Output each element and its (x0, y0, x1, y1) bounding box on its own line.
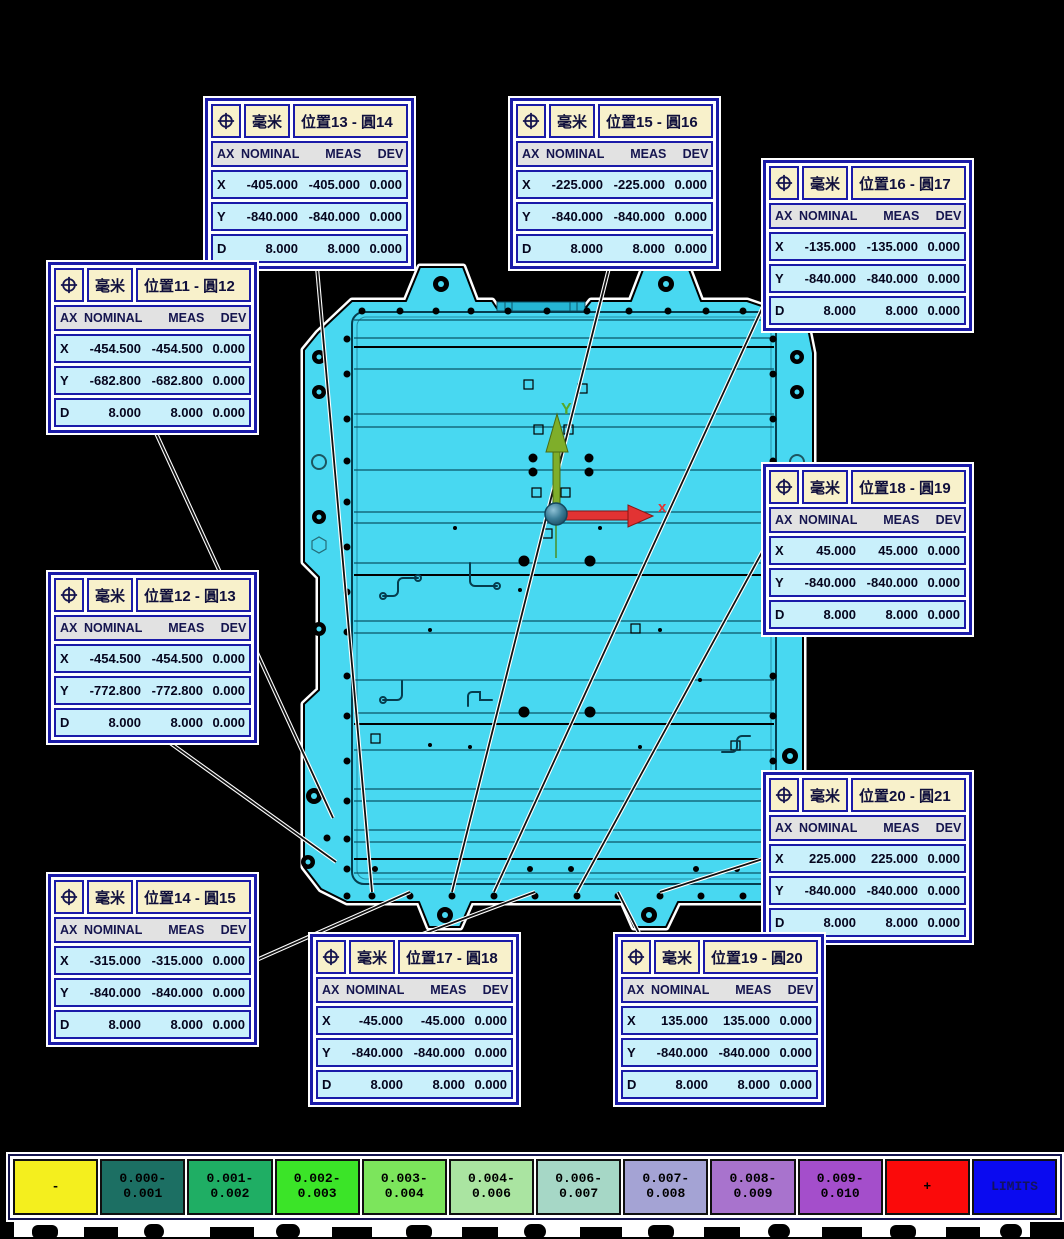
unit-label: 毫米 (654, 940, 700, 974)
position-feature-icon (316, 940, 346, 974)
meas-value: 8.000 (856, 607, 918, 622)
nominal-value: 8.000 (546, 241, 603, 256)
meas-value: 8.000 (298, 241, 360, 256)
col-nominal: NOMINAL (651, 983, 709, 997)
crosshair-circle-icon (60, 586, 78, 604)
feature-label-header: 毫米 位置14 - 圓15 (54, 880, 251, 914)
col-nominal: NOMINAL (546, 147, 604, 161)
nominal-value: 8.000 (84, 715, 141, 730)
dev-value: 0.000 (465, 1013, 507, 1028)
col-dev: DEV (466, 983, 508, 997)
feature-label-header: 毫米 位置15 - 圓16 (516, 104, 713, 138)
legend-cell-0004-0006[interactable]: 0.004-0.006 (449, 1159, 534, 1215)
dev-value: 0.000 (665, 241, 707, 256)
feature-label-header: 毫米 位置17 - 圓18 (316, 940, 513, 974)
nominal-value: 8.000 (346, 1077, 403, 1092)
meas-value: -454.500 (141, 651, 203, 666)
col-nominal: NOMINAL (799, 209, 857, 223)
measurement-row-y: Y -840.000 -840.000 0.000 (769, 264, 966, 293)
legend-cell-0002-0003[interactable]: 0.002-0.003 (275, 1159, 360, 1215)
nominal-value: -840.000 (651, 1045, 708, 1060)
position-feature-icon (211, 104, 241, 138)
measurement-row-x: X 45.000 45.000 0.000 (769, 536, 966, 565)
legend-cell-0006-0007[interactable]: 0.006-0.007 (536, 1159, 621, 1215)
dev-value: 0.000 (203, 683, 245, 698)
col-nominal: NOMINAL (84, 311, 142, 325)
axis-name: Y (775, 883, 799, 898)
axis-name: D (775, 915, 799, 930)
measurement-row-d: D 8.000 8.000 0.000 (769, 908, 966, 937)
column-header-row: AX NOMINAL MEAS DEV (769, 815, 966, 841)
axis-name: D (775, 303, 799, 318)
meas-value: -45.000 (403, 1013, 465, 1028)
axis-name: X (627, 1013, 651, 1028)
measurement-row-x: X -454.500 -454.500 0.000 (54, 334, 251, 363)
legend-cell-under[interactable]: - (13, 1159, 98, 1215)
axis-name: X (217, 177, 241, 192)
column-header-row: AX NOMINAL MEAS DEV (621, 977, 818, 1003)
feature-box-pos18-cir19[interactable]: 毫米 位置18 - 圓19 AX NOMINAL MEAS DEV X 45.0… (763, 464, 972, 635)
meas-value: 8.000 (141, 405, 203, 420)
meas-value: -225.000 (603, 177, 665, 192)
position-feature-icon (516, 104, 546, 138)
nominal-value: 8.000 (799, 303, 856, 318)
feature-title: 位置13 - 圓14 (293, 104, 408, 138)
col-meas: MEAS (299, 147, 361, 161)
col-dev: DEV (919, 821, 961, 835)
axis-name: Y (60, 985, 84, 1000)
axis-name: X (60, 651, 84, 666)
dev-value: 0.000 (918, 303, 960, 318)
col-meas: MEAS (857, 209, 919, 223)
dev-value: 0.000 (203, 405, 245, 420)
meas-value: -454.500 (141, 341, 203, 356)
feature-title: 位置20 - 圓21 (851, 778, 966, 812)
measurement-row-y: Y -840.000 -840.000 0.000 (769, 876, 966, 905)
feature-label-header: 毫米 位置12 - 圓13 (54, 578, 251, 612)
col-ax: AX (522, 147, 546, 161)
unit-label: 毫米 (87, 578, 133, 612)
measurement-row-y: Y -840.000 -840.000 0.000 (621, 1038, 818, 1067)
feature-box-pos20-cir21[interactable]: 毫米 位置20 - 圓21 AX NOMINAL MEAS DEV X 225.… (763, 772, 972, 943)
nominal-value: -405.000 (241, 177, 298, 192)
feature-box-pos15-cir16[interactable]: 毫米 位置15 - 圓16 AX NOMINAL MEAS DEV X -225… (510, 98, 719, 269)
measurement-row-x: X 225.000 225.000 0.000 (769, 844, 966, 873)
crosshair-circle-icon (775, 174, 793, 192)
col-meas: MEAS (857, 513, 919, 527)
measurement-row-y: Y -772.800 -772.800 0.000 (54, 676, 251, 705)
meas-value: -840.000 (141, 985, 203, 1000)
nominal-value: 8.000 (241, 241, 298, 256)
column-header-row: AX NOMINAL MEAS DEV (316, 977, 513, 1003)
feature-label-header: 毫米 位置11 - 圓12 (54, 268, 251, 302)
col-dev: DEV (361, 147, 403, 161)
dev-value: 0.000 (665, 209, 707, 224)
measurement-row-y: Y -840.000 -840.000 0.000 (516, 202, 713, 231)
feature-box-pos12-cir13[interactable]: 毫米 位置12 - 圓13 AX NOMINAL MEAS DEV X -454… (48, 572, 257, 743)
axis-name: Y (60, 683, 84, 698)
dev-value: 0.000 (203, 985, 245, 1000)
nominal-value: -315.000 (84, 953, 141, 968)
measurement-row-d: D 8.000 8.000 0.000 (769, 600, 966, 629)
dev-value: 0.000 (918, 883, 960, 898)
meas-value: -840.000 (603, 209, 665, 224)
col-meas: MEAS (142, 311, 204, 325)
y-axis-label: Y (561, 401, 572, 418)
nominal-value: -454.500 (84, 651, 141, 666)
col-ax: AX (775, 513, 799, 527)
col-ax: AX (60, 311, 84, 325)
col-meas: MEAS (709, 983, 771, 997)
axis-name: D (60, 1017, 84, 1032)
col-nominal: NOMINAL (241, 147, 299, 161)
col-nominal: NOMINAL (346, 983, 404, 997)
legend-cell-0000-0001[interactable]: 0.000-0.001 (100, 1159, 185, 1215)
axis-name: D (522, 241, 546, 256)
col-ax: AX (775, 209, 799, 223)
feature-box-pos13-cir14[interactable]: 毫米 位置13 - 圓14 AX NOMINAL MEAS DEV X -405… (205, 98, 414, 269)
measurement-row-y: Y -682.800 -682.800 0.000 (54, 366, 251, 395)
dev-value: 0.000 (360, 209, 402, 224)
measurement-row-d: D 8.000 8.000 0.000 (54, 398, 251, 427)
measurement-row-y: Y -840.000 -840.000 0.000 (769, 568, 966, 597)
dev-value: 0.000 (360, 177, 402, 192)
unit-label: 毫米 (549, 104, 595, 138)
axis-name: X (775, 851, 799, 866)
nominal-value: 8.000 (84, 1017, 141, 1032)
unit-label: 毫米 (349, 940, 395, 974)
axis-name: X (60, 341, 84, 356)
dev-value: 0.000 (918, 851, 960, 866)
nominal-value: 8.000 (799, 915, 856, 930)
feature-title: 位置18 - 圓19 (851, 470, 966, 504)
axis-name: D (775, 607, 799, 622)
col-dev: DEV (919, 209, 961, 223)
position-feature-icon (54, 578, 84, 612)
crosshair-circle-icon (627, 948, 645, 966)
axis-name: Y (217, 209, 241, 224)
dev-value: 0.000 (465, 1077, 507, 1092)
axis-name: Y (60, 373, 84, 388)
origin-sphere (545, 503, 567, 525)
nominal-value: -840.000 (546, 209, 603, 224)
dev-value: 0.000 (918, 543, 960, 558)
measurement-row-x: X -454.500 -454.500 0.000 (54, 644, 251, 673)
feature-label-header: 毫米 位置16 - 圓17 (769, 166, 966, 200)
meas-value: -315.000 (141, 953, 203, 968)
col-dev: DEV (771, 983, 813, 997)
meas-value: -840.000 (856, 271, 918, 286)
position-feature-icon (54, 880, 84, 914)
axis-name: Y (627, 1045, 651, 1060)
meas-value: 8.000 (141, 715, 203, 730)
crosshair-circle-icon (522, 112, 540, 130)
meas-value: -682.800 (141, 373, 203, 388)
axis-name: Y (522, 209, 546, 224)
legend-cell-0003-0004[interactable]: 0.003-0.004 (362, 1159, 447, 1215)
measurement-row-x: X -45.000 -45.000 0.000 (316, 1006, 513, 1035)
axis-name: Y (322, 1045, 346, 1060)
nominal-value: 8.000 (84, 405, 141, 420)
crosshair-circle-icon (60, 276, 78, 294)
meas-value: 8.000 (708, 1077, 770, 1092)
axis-name: Y (775, 271, 799, 286)
dev-value: 0.000 (770, 1045, 812, 1060)
legend-cell-0001-0002[interactable]: 0.001-0.002 (187, 1159, 272, 1215)
nominal-value: -135.000 (799, 239, 856, 254)
legend-cell-limits[interactable]: LIMITS (972, 1159, 1057, 1215)
unit-label: 毫米 (87, 880, 133, 914)
col-meas: MEAS (142, 923, 204, 937)
col-ax: AX (322, 983, 346, 997)
nominal-value: -840.000 (241, 209, 298, 224)
cutoff-content-strip (14, 1219, 1030, 1237)
dev-value: 0.000 (770, 1077, 812, 1092)
col-ax: AX (60, 621, 84, 635)
crosshair-circle-icon (775, 786, 793, 804)
nominal-value: -772.800 (84, 683, 141, 698)
col-meas: MEAS (857, 821, 919, 835)
col-ax: AX (60, 923, 84, 937)
axis-name: D (60, 405, 84, 420)
measurement-row-d: D 8.000 8.000 0.000 (516, 234, 713, 263)
nominal-value: -45.000 (346, 1013, 403, 1028)
position-feature-icon (769, 166, 799, 200)
unit-label: 毫米 (802, 778, 848, 812)
feature-title: 位置14 - 圓15 (136, 880, 251, 914)
col-meas: MEAS (604, 147, 666, 161)
axis-name: X (60, 953, 84, 968)
meas-value: -135.000 (856, 239, 918, 254)
feature-title: 位置11 - 圓12 (136, 268, 251, 302)
meas-value: 8.000 (856, 303, 918, 318)
position-feature-icon (621, 940, 651, 974)
nominal-value: -840.000 (799, 575, 856, 590)
meas-value: -840.000 (298, 209, 360, 224)
feature-box-pos14-cir15[interactable]: 毫米 位置14 - 圓15 AX NOMINAL MEAS DEV X -315… (48, 874, 257, 1045)
legend-cell-0008-0009[interactable]: 0.008-0.009 (710, 1159, 795, 1215)
dev-value: 0.000 (203, 953, 245, 968)
measurement-row-d: D 8.000 8.000 0.000 (54, 1010, 251, 1039)
axis-name: D (627, 1077, 651, 1092)
measurement-row-x: X -225.000 -225.000 0.000 (516, 170, 713, 199)
feature-label-header: 毫米 位置18 - 圓19 (769, 470, 966, 504)
position-feature-icon (769, 470, 799, 504)
column-header-row: AX NOMINAL MEAS DEV (769, 507, 966, 533)
unit-label: 毫米 (87, 268, 133, 302)
measurement-row-x: X -315.000 -315.000 0.000 (54, 946, 251, 975)
legend-cell-0009-0010[interactable]: 0.009-0.010 (798, 1159, 883, 1215)
measurement-row-x: X -135.000 -135.000 0.000 (769, 232, 966, 261)
nominal-value: -840.000 (799, 271, 856, 286)
unit-label: 毫米 (802, 166, 848, 200)
column-header-row: AX NOMINAL MEAS DEV (769, 203, 966, 229)
axis-name: D (217, 241, 241, 256)
nominal-value: 225.000 (799, 851, 856, 866)
dev-value: 0.000 (665, 177, 707, 192)
axis-name: D (60, 715, 84, 730)
dev-value: 0.000 (918, 271, 960, 286)
dev-value: 0.000 (918, 575, 960, 590)
axis-name: X (775, 239, 799, 254)
crosshair-circle-icon (775, 478, 793, 496)
axis-name: Y (775, 575, 799, 590)
meas-value: 225.000 (856, 851, 918, 866)
col-ax: AX (217, 147, 241, 161)
feature-box-pos16-cir17[interactable]: 毫米 位置16 - 圓17 AX NOMINAL MEAS DEV X -135… (763, 160, 972, 331)
nominal-value: -840.000 (799, 883, 856, 898)
meas-value: -840.000 (708, 1045, 770, 1060)
measurement-row-d: D 8.000 8.000 0.000 (211, 234, 408, 263)
feature-title: 位置17 - 圓18 (398, 940, 513, 974)
nominal-value: 45.000 (799, 543, 856, 558)
crosshair-circle-icon (322, 948, 340, 966)
meas-value: 8.000 (141, 1017, 203, 1032)
column-header-row: AX NOMINAL MEAS DEV (54, 615, 251, 641)
dev-value: 0.000 (360, 241, 402, 256)
dev-value: 0.000 (203, 651, 245, 666)
measurement-row-y: Y -840.000 -840.000 0.000 (316, 1038, 513, 1067)
feature-label-header: 毫米 位置13 - 圓14 (211, 104, 408, 138)
legend-cell-over[interactable]: + (885, 1159, 970, 1215)
axis-name: D (322, 1077, 346, 1092)
meas-value: -840.000 (403, 1045, 465, 1060)
col-dev: DEV (204, 621, 246, 635)
cmm-report-canvas: { "app": {"background": "#000000"}, "col… (0, 0, 1064, 1237)
col-ax: AX (627, 983, 651, 997)
meas-value: 8.000 (603, 241, 665, 256)
feature-label-header: 毫米 位置19 - 圓20 (621, 940, 818, 974)
measurement-row-x: X -405.000 -405.000 0.000 (211, 170, 408, 199)
feature-title: 位置12 - 圓13 (136, 578, 251, 612)
crosshair-circle-icon (60, 888, 78, 906)
measurement-row-d: D 8.000 8.000 0.000 (316, 1070, 513, 1099)
measurement-row-x: X 135.000 135.000 0.000 (621, 1006, 818, 1035)
feature-box-pos17-cir18[interactable]: 毫米 位置17 - 圓18 AX NOMINAL MEAS DEV X -45.… (310, 934, 519, 1105)
deviation-color-scale: - 0.000-0.001 0.001-0.002 0.002-0.003 0.… (8, 1154, 1062, 1220)
measurement-row-d: D 8.000 8.000 0.000 (54, 708, 251, 737)
measurement-row-y: Y -840.000 -840.000 0.000 (54, 978, 251, 1007)
dev-value: 0.000 (203, 341, 245, 356)
dev-value: 0.000 (465, 1045, 507, 1060)
meas-value: -840.000 (856, 883, 918, 898)
dev-value: 0.000 (770, 1013, 812, 1028)
y-axis-shaft (553, 448, 560, 508)
dev-value: 0.000 (918, 915, 960, 930)
meas-value: -772.800 (141, 683, 203, 698)
col-meas: MEAS (404, 983, 466, 997)
meas-value: -405.000 (298, 177, 360, 192)
x-axis-shaft (566, 511, 628, 520)
col-dev: DEV (204, 311, 246, 325)
col-dev: DEV (204, 923, 246, 937)
nominal-value: 135.000 (651, 1013, 708, 1028)
nominal-value: 8.000 (799, 607, 856, 622)
col-nominal: NOMINAL (84, 621, 142, 635)
measurement-row-y: Y -840.000 -840.000 0.000 (211, 202, 408, 231)
col-dev: DEV (919, 513, 961, 527)
nominal-value: 8.000 (651, 1077, 708, 1092)
nominal-value: -840.000 (346, 1045, 403, 1060)
col-nominal: NOMINAL (799, 821, 857, 835)
column-header-row: AX NOMINAL MEAS DEV (54, 305, 251, 331)
feature-box-pos19-cir20[interactable]: 毫米 位置19 - 圓20 AX NOMINAL MEAS DEV X 135.… (615, 934, 824, 1105)
col-meas: MEAS (142, 621, 204, 635)
measurement-row-d: D 8.000 8.000 0.000 (769, 296, 966, 325)
nominal-value: -682.800 (84, 373, 141, 388)
feature-title: 位置16 - 圓17 (851, 166, 966, 200)
col-dev: DEV (666, 147, 708, 161)
unit-label: 毫米 (244, 104, 290, 138)
dev-value: 0.000 (918, 239, 960, 254)
nominal-value: -225.000 (546, 177, 603, 192)
feature-label-header: 毫米 位置20 - 圓21 (769, 778, 966, 812)
legend-cell-0007-0008[interactable]: 0.007-0.008 (623, 1159, 708, 1215)
axis-name: X (522, 177, 546, 192)
column-header-row: AX NOMINAL MEAS DEV (516, 141, 713, 167)
meas-value: 8.000 (856, 915, 918, 930)
col-nominal: NOMINAL (799, 513, 857, 527)
axis-name: X (775, 543, 799, 558)
meas-value: 8.000 (403, 1077, 465, 1092)
axis-name: X (322, 1013, 346, 1028)
crosshair-circle-icon (217, 112, 235, 130)
feature-title: 位置15 - 圓16 (598, 104, 713, 138)
dev-value: 0.000 (203, 373, 245, 388)
position-feature-icon (769, 778, 799, 812)
meas-value: 45.000 (856, 543, 918, 558)
column-header-row: AX NOMINAL MEAS DEV (54, 917, 251, 943)
nominal-value: -454.500 (84, 341, 141, 356)
column-header-row: AX NOMINAL MEAS DEV (211, 141, 408, 167)
unit-label: 毫米 (802, 470, 848, 504)
meas-value: 135.000 (708, 1013, 770, 1028)
feature-title: 位置19 - 圓20 (703, 940, 818, 974)
dev-value: 0.000 (203, 715, 245, 730)
position-feature-icon (54, 268, 84, 302)
measurement-row-d: D 8.000 8.000 0.000 (621, 1070, 818, 1099)
dev-value: 0.000 (203, 1017, 245, 1032)
col-ax: AX (775, 821, 799, 835)
nominal-value: -840.000 (84, 985, 141, 1000)
meas-value: -840.000 (856, 575, 918, 590)
x-axis-label: x (658, 499, 667, 516)
feature-box-pos11-cir12[interactable]: 毫米 位置11 - 圓12 AX NOMINAL MEAS DEV X -454… (48, 262, 257, 433)
dev-value: 0.000 (918, 607, 960, 622)
col-nominal: NOMINAL (84, 923, 142, 937)
